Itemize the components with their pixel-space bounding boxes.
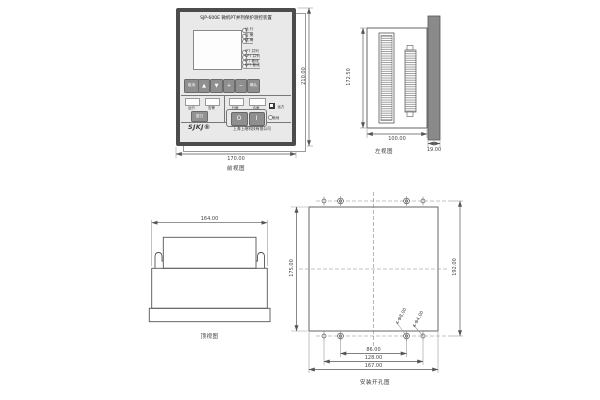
panel-divider [224, 95, 225, 122]
brand-logo: SJKJ® [188, 123, 211, 131]
close-button: I [249, 112, 265, 126]
remote-label: 远方 [278, 104, 285, 109]
left-height-dim: 172.50 [346, 57, 352, 97]
company-name: 上海上继科技有限公司 [218, 126, 286, 132]
reset-button: 复归 [191, 111, 208, 123]
top-view-clip-right [256, 253, 265, 269]
install-view-caption: 安装开孔图 [330, 378, 420, 386]
install-mid-span-dim: 128.00 [324, 355, 423, 361]
front-height-dim: 210.00 [301, 56, 307, 96]
led-label: 跳 闸 [245, 39, 253, 44]
top-view-body [163, 237, 256, 268]
up-arrow-key: ▲ [198, 79, 210, 93]
signal-window-label: 运行 [185, 105, 198, 110]
minus-key: − [235, 79, 247, 93]
left-view-caption: 左视图 [367, 147, 401, 155]
install-right-dim: 192.00 [452, 247, 458, 287]
top-view-mid-section [152, 268, 268, 308]
left-panel-dim: 19.00 [420, 147, 448, 153]
front-panel-face: SJP-600E 微机PT并列保护测控装置 运 行 告 警 跳 闸 IPT 并列… [180, 12, 292, 142]
left-view-connector [405, 50, 416, 112]
left-width-dim: 100.00 [367, 136, 427, 142]
install-outer-span-dim: 167.00 [309, 363, 438, 369]
install-inner-span-dim: 86.00 [343, 347, 404, 353]
left-view-chassis [367, 28, 427, 128]
down-arrow-key: ▼ [210, 79, 223, 93]
led-label: IIPT 断线 [245, 64, 260, 69]
device-model-title: SJP-600E 微机PT并列保护测控装置 [180, 15, 292, 21]
top-view-drawing [149, 220, 270, 322]
top-view-caption: 顶视图 [167, 332, 252, 340]
signal-window-label: 告警 [205, 105, 218, 110]
plus-key: + [223, 79, 235, 93]
key-switch-icon [269, 103, 276, 109]
install-view-drawing [291, 192, 463, 373]
cancel-key: 取消 [184, 79, 199, 93]
install-left-dim: 175.00 [289, 248, 295, 288]
front-view-caption: 前视图 [176, 164, 296, 172]
open-button: O [231, 112, 248, 126]
left-view-panel-bar [428, 16, 440, 140]
operate-button-frame: O I [226, 109, 267, 128]
top-view-clip-left [155, 253, 163, 269]
drawing-canvas: SJP-600E 微机PT并列保护测控装置 运 行 告 警 跳 闸 IPT 并列… [0, 0, 600, 400]
confirm-key: 确认 [247, 79, 260, 93]
install-centerlines [299, 192, 452, 347]
local-label: 就地 [273, 115, 280, 120]
lcd-screen [193, 30, 242, 70]
panel-divider [181, 95, 291, 96]
left-view-drawing [360, 16, 440, 147]
front-width-dim: 170.00 [176, 156, 296, 162]
top-view-bezel [149, 308, 270, 321]
top-width-dim: 164.00 [152, 216, 267, 222]
